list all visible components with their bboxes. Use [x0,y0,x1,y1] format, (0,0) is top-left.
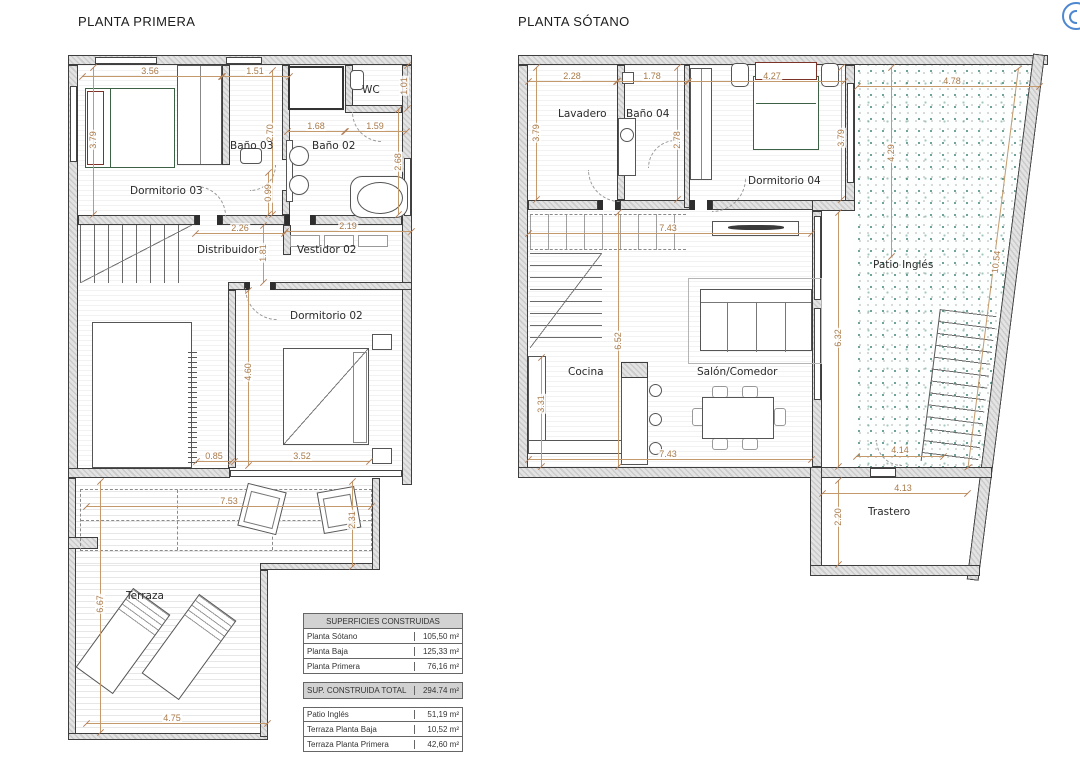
dim-line [856,456,944,457]
row-value: 105,50 m² [414,632,462,641]
dimension-label: 2.68 [393,152,403,172]
table-row: Planta Primera 76,16 m² [303,659,463,674]
plan-primera-title: PLANTA PRIMERA [78,14,195,29]
washer [622,72,634,84]
total-value: 294.74 m² [414,686,462,695]
row-value: 51,19 m² [414,710,462,719]
sofa-cushion-line [756,302,757,352]
bathtub-basin [357,182,403,214]
room-label-patio-ingles: Patio Inglés [873,259,933,271]
dimension-label: 0.99 [263,183,273,203]
room-label-terraza: Terraza [126,590,164,602]
room-label-bano02: Baño 02 [312,140,355,152]
dim-line [86,723,268,724]
bed-fold-line [756,103,816,104]
dimension-label: 3.79 [836,128,846,148]
dimension-label: 6.52 [613,331,623,351]
sofa [700,289,812,351]
dim-line [528,81,617,82]
door-jamb [690,200,695,210]
dim-line [822,493,968,494]
row-value: 76,16 m² [414,662,462,671]
room-label-vestidor02: Vestidor 02 [297,244,356,256]
wall [518,467,830,478]
room-label-bano04: Baño 04 [626,108,669,120]
room-label-trastero: Trastero [868,506,910,518]
dimension-label: 4.13 [893,483,913,493]
nightstand [372,448,392,464]
dimension-label: 4.14 [890,445,910,455]
wardrobe-line [701,69,702,179]
dimension-label: 4.60 [243,362,253,382]
dimension-label: 2.26 [230,223,250,233]
dimension-label: 7.43 [658,449,678,459]
dimension-label: 3.79 [88,130,98,150]
row-value: 42,60 m² [414,740,462,749]
staircase [80,225,192,283]
floor-plan-sheet: PLANTA PRIMERA PLANTA SÓTANO [0,0,1080,775]
room-label-bano03: Baño 03 [230,140,273,152]
dimension-label: 2.19 [338,221,358,231]
total-label: SUP. CONSTRUIDA TOTAL [304,686,414,695]
wall [275,282,412,290]
stair-break-line [530,253,602,348]
bed-fold-line [110,89,111,167]
row-label: Planta Baja [304,647,414,656]
room-label-salon-comedor: Salón/Comedor [697,366,777,378]
stool [649,384,662,397]
window [95,57,157,64]
kitchen-counter [528,440,628,454]
door-jamb [195,215,200,225]
dim-line [287,131,345,132]
wardrobe-line [200,66,201,164]
total-row: SUP. CONSTRUIDA TOTAL 294.74 m² [303,682,463,699]
dimension-label: 4.75 [162,713,182,723]
terrace-wall [260,570,268,737]
room-label-cocina: Cocina [568,366,604,378]
door-jamb [217,215,222,225]
railing [188,352,197,464]
dim-line [86,506,372,507]
sofa-cushion-line [785,302,786,352]
plan-sotano-title: PLANTA SÓTANO [518,14,630,29]
wall [228,282,245,290]
sink-counter [618,118,636,176]
areas-table-header: SUPERFICIES CONSTRUIDAS [303,613,463,629]
dimension-label: 4.78 [942,76,962,86]
dining-table [702,397,774,439]
wall [78,215,195,225]
dimension-label: 2.28 [562,71,582,81]
dimension-label: 2.78 [672,130,682,150]
row-label: Terraza Planta Baja [304,725,414,734]
dimension-label: 1.78 [642,71,662,81]
dimension-label: 6.32 [833,328,843,348]
terrace-wall [68,478,76,740]
wall [528,200,598,210]
nightstand [821,63,839,87]
dimension-label: 7.43 [658,223,678,233]
room-label-dormitorio02: Dormitorio 02 [290,310,363,322]
wall [518,65,528,478]
stairwell-void [92,322,192,468]
dimension-label: 4.27 [762,71,782,81]
dimension-label: 6.67 [95,594,105,614]
wall [402,65,412,485]
terrace-wall [372,478,380,570]
chair [774,408,786,426]
door-jamb [285,215,290,225]
chair [712,438,728,450]
dim-line [688,81,845,82]
bed [753,76,819,150]
dim-line [857,86,1040,87]
wall [68,468,230,478]
bed-pillow [87,91,104,165]
door-opening [870,468,896,477]
table-row: Patio Inglés 51,19 m² [303,707,463,722]
row-label: Patio Inglés [304,710,414,719]
bed-pillow [353,352,367,443]
window [847,83,854,183]
bed [283,348,369,445]
dim-line [528,233,812,234]
dimension-label: 1.51 [245,66,265,76]
dim-line [196,461,232,462]
island-hob [621,362,648,378]
staircase [530,253,602,348]
dimension-label: 3.52 [292,451,312,461]
dimension-label: 3.31 [536,394,546,414]
dimension-label: 3.79 [531,123,541,143]
dimension-label: 2.20 [833,507,843,527]
dimension-label: 1.68 [306,121,326,131]
dimension-label: 1.81 [258,243,268,263]
row-label: Planta Primera [304,662,414,671]
dim-line [234,461,370,462]
door-jamb [310,215,315,225]
wall [222,65,230,165]
row-value: 125,33 m² [414,647,462,656]
dimension-label: 7.53 [219,496,239,506]
terrace-wall [260,563,380,570]
logo-glyph [1069,10,1077,24]
table-row: Planta Baja 125,33 m² [303,644,463,659]
table-row: Planta Sótano 105,50 m² [303,629,463,644]
room-label-dormitorio03: Dormitorio 03 [130,185,203,197]
window [70,86,77,162]
shower [288,66,344,110]
wardrobe [690,68,712,180]
room-label-wc: WC [362,84,380,96]
dim-line [222,76,290,77]
chair [742,438,758,450]
areas-summary: SUPERFICIES CONSTRUIDAS Planta Sótano 10… [303,613,463,752]
dim-line [82,76,222,77]
row-value: 10,52 m² [414,725,462,734]
wall [810,467,822,576]
armchair-cushion [243,491,280,529]
row-label: Planta Sótano [304,632,414,641]
tv-icon [728,225,784,230]
room-label-lavadero: Lavadero [558,108,607,120]
closet-rack [358,235,388,247]
stair-break-line [80,225,192,283]
room-label-dormitorio04: Dormitorio 04 [748,175,821,187]
bed [85,88,175,168]
table-row: Terraza Planta Primera 42,60 m² [303,737,463,752]
wall [620,200,690,210]
sofa-cushion-line [727,302,728,352]
wardrobe [177,65,222,165]
dim-line [285,231,412,232]
sink [289,175,309,195]
stool [649,413,662,426]
table-row: Terraza Planta Baja 10,52 m² [303,722,463,737]
room-label-distribuidor: Distribuidor [197,244,258,256]
nightstand [372,334,392,350]
dim-line [528,459,812,460]
window [226,57,262,64]
watermark-logo-icon [1062,2,1080,30]
dim-line [195,233,285,234]
nightstand [731,63,749,87]
sink [620,128,634,142]
sink [289,146,309,166]
dimension-label: 3.56 [140,66,160,76]
door-jamb [598,200,603,210]
wall [812,200,855,211]
dimension-label: 1.59 [365,121,385,131]
row-label: Terraza Planta Primera [304,740,414,749]
wall [228,290,236,468]
sliding-door [230,470,402,477]
dimension-label: 2.31 [347,510,357,530]
dimension-label: 0.85 [204,451,224,461]
dimension-label: 4.29 [886,143,896,163]
dimension-label: 1.01 [399,76,409,96]
